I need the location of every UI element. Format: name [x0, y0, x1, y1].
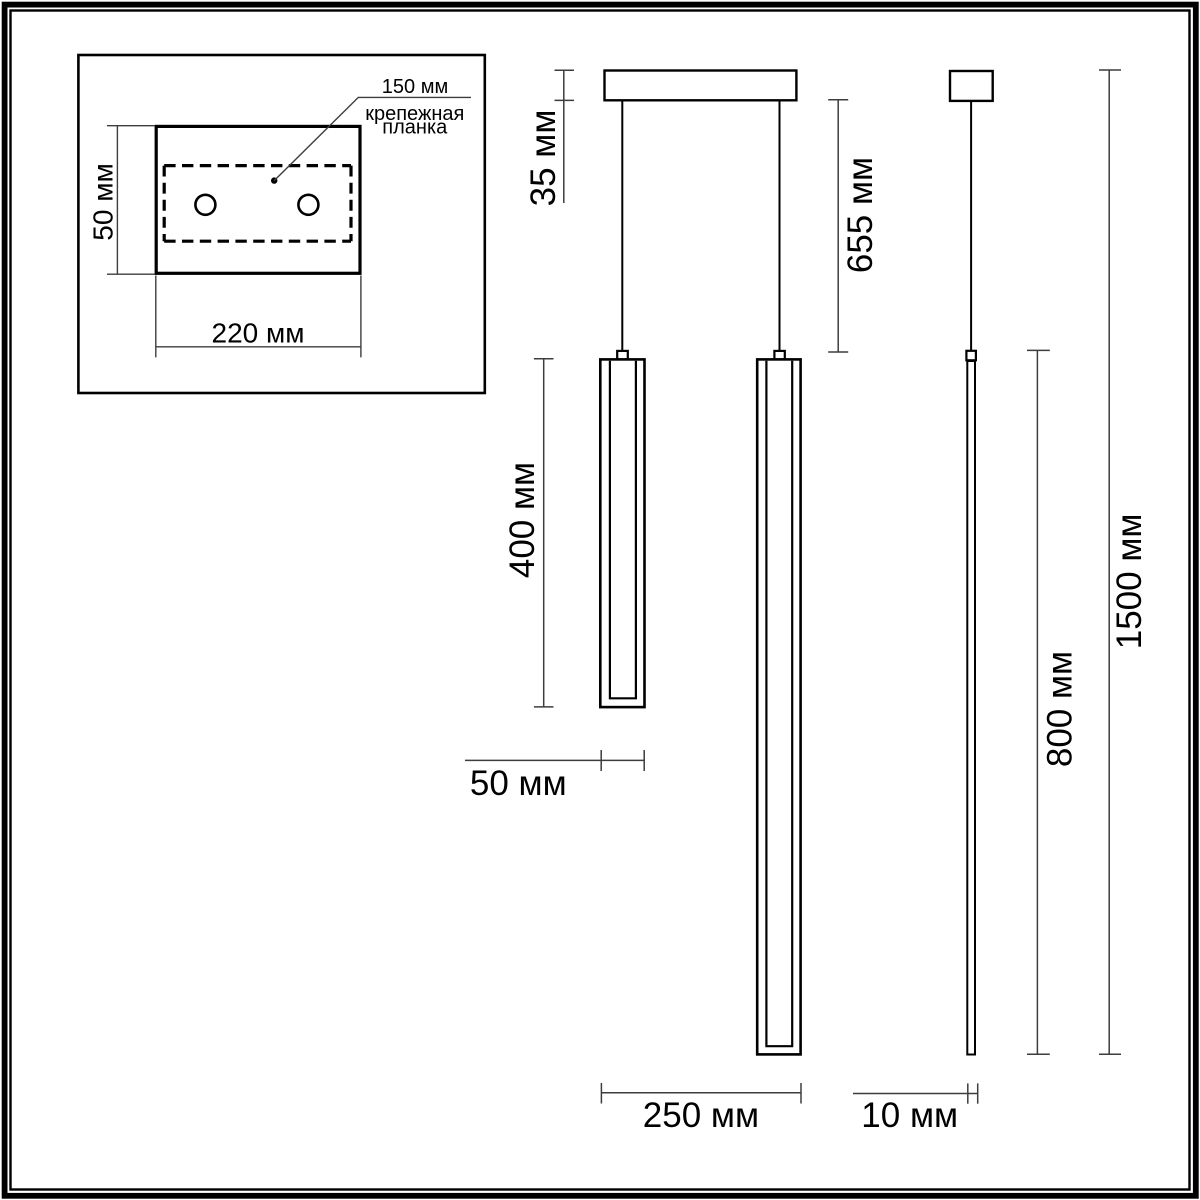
svg-text:1500 мм: 1500 мм — [1110, 514, 1149, 650]
svg-text:10 мм: 10 мм — [861, 1096, 958, 1135]
svg-text:50 мм: 50 мм — [470, 764, 567, 803]
svg-text:250 мм: 250 мм — [643, 1096, 759, 1135]
svg-text:планка: планка — [382, 117, 448, 139]
svg-text:655 мм: 655 мм — [841, 157, 880, 273]
svg-text:150 мм: 150 мм — [382, 76, 448, 98]
svg-text:50 мм: 50 мм — [87, 163, 118, 240]
svg-text:400 мм: 400 мм — [503, 462, 542, 578]
svg-text:35 мм: 35 мм — [524, 110, 563, 207]
svg-text:800 мм: 800 мм — [1041, 651, 1080, 767]
svg-text:220 мм: 220 мм — [212, 318, 305, 349]
